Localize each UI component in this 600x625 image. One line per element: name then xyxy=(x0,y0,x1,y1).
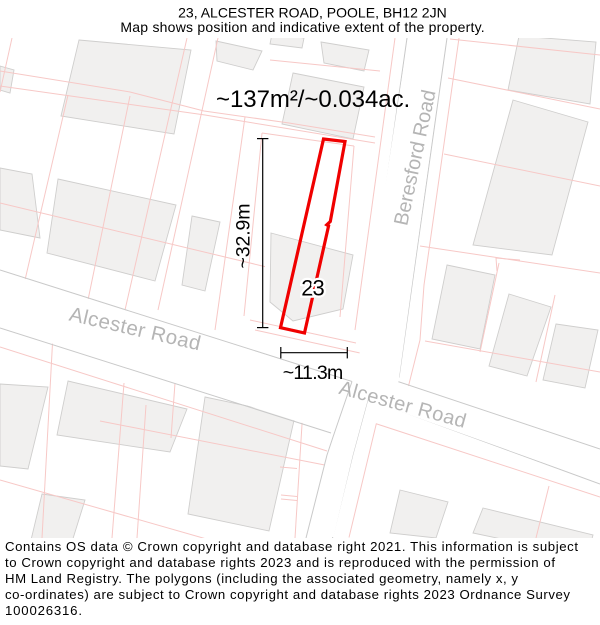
svg-text:to Crown copyright and databas: to Crown copyright and database rights 2… xyxy=(5,555,555,570)
svg-text:Map shows position and indicat: Map shows position and indicative extent… xyxy=(120,19,484,35)
svg-text:~32.9m: ~32.9m xyxy=(233,204,255,269)
svg-text:HM Land Registry. The polygons: HM Land Registry. The polygons (includin… xyxy=(5,571,518,586)
svg-text:100026316.: 100026316. xyxy=(5,603,82,618)
svg-text:23: 23 xyxy=(301,275,325,300)
svg-text:co-ordinates) are subject to C: co-ordinates) are subject to Crown copyr… xyxy=(5,587,570,602)
svg-text:Contains OS data © Crown copyr: Contains OS data © Crown copyright and d… xyxy=(5,539,578,554)
svg-text:~137m²/~0.034ac.: ~137m²/~0.034ac. xyxy=(216,86,410,113)
svg-text:~11.3m: ~11.3m xyxy=(283,362,344,384)
